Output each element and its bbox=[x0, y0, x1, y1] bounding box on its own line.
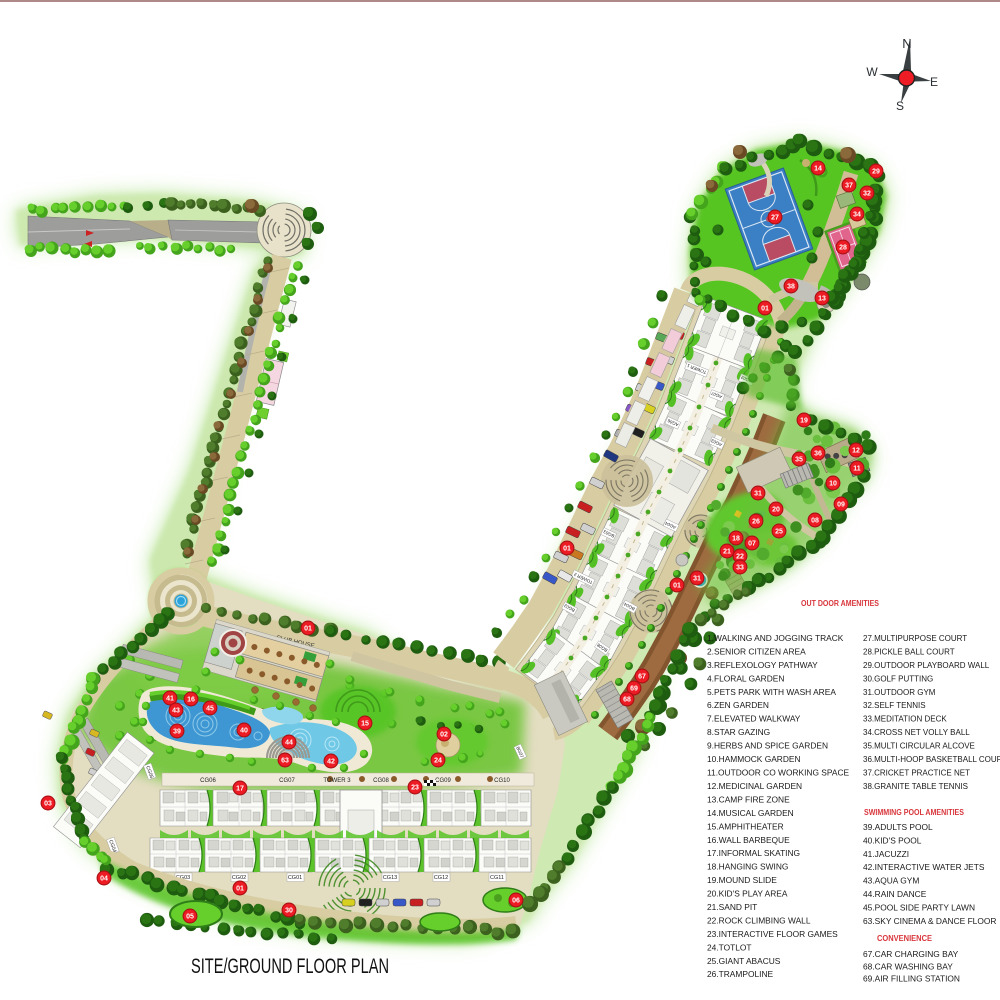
svg-text:30: 30 bbox=[285, 908, 293, 915]
svg-text:01: 01 bbox=[563, 546, 571, 553]
svg-text:01: 01 bbox=[761, 306, 769, 313]
svg-text:36.MULTI-HOOP BASKETBALL COURT: 36.MULTI-HOOP BASKETBALL COURT bbox=[863, 755, 1000, 764]
svg-text:28.PICKLE BALL COURT: 28.PICKLE BALL COURT bbox=[863, 648, 955, 657]
svg-text:31.OUTDOOR GYM: 31.OUTDOOR GYM bbox=[863, 688, 936, 697]
svg-text:05: 05 bbox=[186, 914, 194, 921]
svg-text:21: 21 bbox=[723, 549, 731, 556]
svg-text:02: 02 bbox=[440, 732, 448, 739]
svg-text:43: 43 bbox=[172, 708, 180, 715]
svg-text:22.ROCK CLIMBING WALL: 22.ROCK CLIMBING WALL bbox=[707, 916, 811, 926]
svg-text:15: 15 bbox=[361, 721, 369, 728]
svg-text:1.WALKING AND JOGGING TRACK: 1.WALKING AND JOGGING TRACK bbox=[707, 633, 844, 643]
svg-text:27: 27 bbox=[771, 215, 779, 222]
svg-text:OUT DOOR AMENITIES: OUT DOOR AMENITIES bbox=[801, 599, 880, 608]
svg-text:CG12: CG12 bbox=[434, 875, 448, 881]
svg-text:11.OUTDOOR CO WORKING SPACE: 11.OUTDOOR CO WORKING SPACE bbox=[707, 768, 849, 778]
svg-text:19: 19 bbox=[800, 418, 808, 425]
svg-text:40: 40 bbox=[240, 728, 248, 735]
svg-text:SITE/GROUND FLOOR PLAN: SITE/GROUND FLOOR PLAN bbox=[191, 955, 389, 978]
svg-text:16: 16 bbox=[187, 697, 195, 704]
svg-text:34: 34 bbox=[853, 212, 861, 219]
svg-text:25.GIANT ABACUS: 25.GIANT ABACUS bbox=[707, 956, 781, 966]
svg-text:04: 04 bbox=[100, 876, 108, 883]
svg-text:68.CAR WASHING BAY: 68.CAR WASHING BAY bbox=[863, 961, 953, 971]
svg-text:15.AMPHITHEATER: 15.AMPHITHEATER bbox=[707, 821, 784, 831]
svg-text:69: 69 bbox=[630, 686, 638, 693]
svg-text:19.MOUND SLIDE: 19.MOUND SLIDE bbox=[707, 875, 777, 885]
svg-text:32: 32 bbox=[863, 191, 871, 198]
svg-text:01: 01 bbox=[304, 626, 312, 633]
svg-text:40.KID'S POOL: 40.KID'S POOL bbox=[863, 835, 922, 845]
svg-text:12.MEDICINAL GARDEN: 12.MEDICINAL GARDEN bbox=[707, 781, 802, 791]
svg-text:45.POOL SIDE PARTY LAWN: 45.POOL SIDE PARTY LAWN bbox=[863, 902, 975, 912]
svg-text:63.SKY CINEMA & DANCE FLOOR: 63.SKY CINEMA & DANCE FLOOR bbox=[863, 916, 996, 926]
svg-text:08: 08 bbox=[811, 518, 819, 525]
svg-text:18: 18 bbox=[732, 536, 740, 543]
svg-text:09: 09 bbox=[837, 502, 845, 509]
svg-text:2.SENIOR CITIZEN AREA: 2.SENIOR CITIZEN AREA bbox=[707, 647, 806, 657]
svg-text:35.MULTI CIRCULAR ALCOVE: 35.MULTI CIRCULAR ALCOVE bbox=[863, 742, 975, 751]
svg-text:42.INTERACTIVE WATER JETS: 42.INTERACTIVE WATER JETS bbox=[863, 862, 985, 872]
svg-text:26: 26 bbox=[752, 519, 760, 526]
svg-text:26.TRAMPOLINE: 26.TRAMPOLINE bbox=[707, 969, 774, 979]
svg-text:33: 33 bbox=[736, 565, 744, 572]
svg-text:31: 31 bbox=[693, 576, 701, 583]
svg-text:38: 38 bbox=[787, 284, 795, 291]
svg-text:36: 36 bbox=[814, 451, 822, 458]
svg-text:N: N bbox=[902, 36, 911, 51]
svg-text:67.CAR CHARGING BAY: 67.CAR CHARGING BAY bbox=[863, 949, 959, 959]
svg-text:3.REFLEXOLOGY PATHWAY: 3.REFLEXOLOGY PATHWAY bbox=[707, 660, 818, 670]
svg-text:27.MULTIPURPOSE COURT: 27.MULTIPURPOSE COURT bbox=[863, 634, 967, 643]
svg-text:11: 11 bbox=[853, 466, 861, 473]
svg-text:CONVENIENCE: CONVENIENCE bbox=[877, 934, 933, 943]
svg-text:16.WALL BARBEQUE: 16.WALL BARBEQUE bbox=[707, 835, 790, 845]
svg-text:20.KID'S PLAY AREA: 20.KID'S PLAY AREA bbox=[707, 889, 788, 899]
svg-text:18.HANGING SWING: 18.HANGING SWING bbox=[707, 862, 788, 872]
svg-text:9.HERBS AND SPICE GARDEN: 9.HERBS AND SPICE GARDEN bbox=[707, 741, 828, 751]
svg-text:67: 67 bbox=[638, 674, 646, 681]
svg-text:CG01: CG01 bbox=[288, 875, 302, 881]
svg-text:07: 07 bbox=[748, 541, 756, 548]
svg-text:14: 14 bbox=[814, 166, 822, 173]
svg-text:5.PETS PARK WITH WASH AREA: 5.PETS PARK WITH WASH AREA bbox=[707, 687, 836, 697]
svg-text:29.OUTDOOR PLAYBOARD WALL: 29.OUTDOOR PLAYBOARD WALL bbox=[863, 661, 990, 670]
svg-text:SWIMMING POOL AMENITIES: SWIMMING POOL AMENITIES bbox=[864, 808, 965, 817]
svg-text:68: 68 bbox=[623, 697, 631, 704]
svg-text:37: 37 bbox=[845, 183, 853, 190]
svg-text:41: 41 bbox=[166, 696, 174, 703]
svg-text:69.AIR FILLING STATION: 69.AIR FILLING STATION bbox=[863, 974, 960, 984]
svg-text:S: S bbox=[896, 99, 904, 113]
svg-text:01: 01 bbox=[236, 886, 244, 893]
svg-text:28: 28 bbox=[839, 245, 847, 252]
svg-text:32.SELF TENNIS: 32.SELF TENNIS bbox=[863, 701, 926, 710]
svg-text:21.SAND PIT: 21.SAND PIT bbox=[707, 902, 757, 912]
svg-text:34.CROSS NET VOLLY BALL: 34.CROSS NET VOLLY BALL bbox=[863, 728, 970, 737]
svg-text:13.CAMP FIRE ZONE: 13.CAMP FIRE ZONE bbox=[707, 794, 790, 804]
svg-text:CG09: CG09 bbox=[435, 778, 451, 784]
svg-text:6.ZEN GARDEN: 6.ZEN GARDEN bbox=[707, 700, 769, 710]
svg-text:17.INFORMAL SKATING: 17.INFORMAL SKATING bbox=[707, 848, 800, 858]
svg-text:45: 45 bbox=[206, 706, 214, 713]
svg-text:12: 12 bbox=[852, 448, 860, 455]
svg-text:20: 20 bbox=[772, 507, 780, 514]
svg-text:CG13: CG13 bbox=[383, 875, 397, 881]
svg-text:22: 22 bbox=[736, 554, 744, 561]
svg-text:CG08: CG08 bbox=[373, 778, 389, 784]
svg-text:39: 39 bbox=[173, 729, 181, 736]
svg-text:W: W bbox=[866, 65, 878, 79]
svg-text:37.CRICKET PRACTICE NET: 37.CRICKET PRACTICE NET bbox=[863, 769, 970, 778]
svg-text:44.RAIN DANCE: 44.RAIN DANCE bbox=[863, 889, 927, 899]
svg-text:06: 06 bbox=[512, 898, 520, 905]
svg-text:03: 03 bbox=[44, 801, 52, 808]
svg-text:8.STAR GAZING: 8.STAR GAZING bbox=[707, 727, 770, 737]
svg-text:33.MEDITATION DECK: 33.MEDITATION DECK bbox=[863, 715, 947, 724]
svg-text:10.HAMMOCK GARDEN: 10.HAMMOCK GARDEN bbox=[707, 754, 801, 764]
svg-text:CG10: CG10 bbox=[494, 778, 510, 784]
svg-text:39.ADULTS POOL: 39.ADULTS POOL bbox=[863, 822, 933, 832]
svg-text:23: 23 bbox=[411, 785, 419, 792]
svg-text:30.GOLF PUTTING: 30.GOLF PUTTING bbox=[863, 674, 933, 683]
svg-text:31: 31 bbox=[754, 491, 762, 498]
svg-text:CG11: CG11 bbox=[490, 875, 504, 881]
svg-text:10: 10 bbox=[829, 481, 837, 488]
svg-text:24: 24 bbox=[434, 758, 442, 765]
svg-text:41.JACUZZI: 41.JACUZZI bbox=[863, 849, 909, 859]
svg-text:E: E bbox=[930, 75, 938, 89]
svg-text:43.AQUA GYM: 43.AQUA GYM bbox=[863, 876, 919, 886]
svg-text:4.FLORAL GARDEN: 4.FLORAL GARDEN bbox=[707, 673, 784, 683]
svg-text:24.TOTLOT: 24.TOTLOT bbox=[707, 942, 752, 952]
svg-text:38.GRANITE TABLE TENNIS: 38.GRANITE TABLE TENNIS bbox=[863, 782, 968, 791]
svg-text:42: 42 bbox=[327, 759, 335, 766]
svg-text:7.ELEVATED WALKWAY: 7.ELEVATED WALKWAY bbox=[707, 714, 801, 724]
svg-text:17: 17 bbox=[236, 786, 244, 793]
svg-text:25: 25 bbox=[775, 529, 783, 536]
svg-text:44: 44 bbox=[285, 740, 293, 747]
svg-text:CG06: CG06 bbox=[200, 778, 216, 784]
svg-text:29: 29 bbox=[872, 169, 880, 176]
svg-text:35: 35 bbox=[795, 457, 803, 464]
svg-text:CG07: CG07 bbox=[279, 778, 295, 784]
svg-text:01: 01 bbox=[673, 583, 681, 590]
svg-text:TOWER 3: TOWER 3 bbox=[323, 778, 351, 784]
svg-text:23.INTERACTIVE FLOOR GAMES: 23.INTERACTIVE FLOOR GAMES bbox=[707, 929, 838, 939]
svg-text:14.MUSICAL GARDEN: 14.MUSICAL GARDEN bbox=[707, 808, 794, 818]
svg-text:CG02: CG02 bbox=[232, 875, 246, 881]
svg-text:63: 63 bbox=[281, 758, 289, 765]
svg-text:13: 13 bbox=[818, 296, 826, 303]
